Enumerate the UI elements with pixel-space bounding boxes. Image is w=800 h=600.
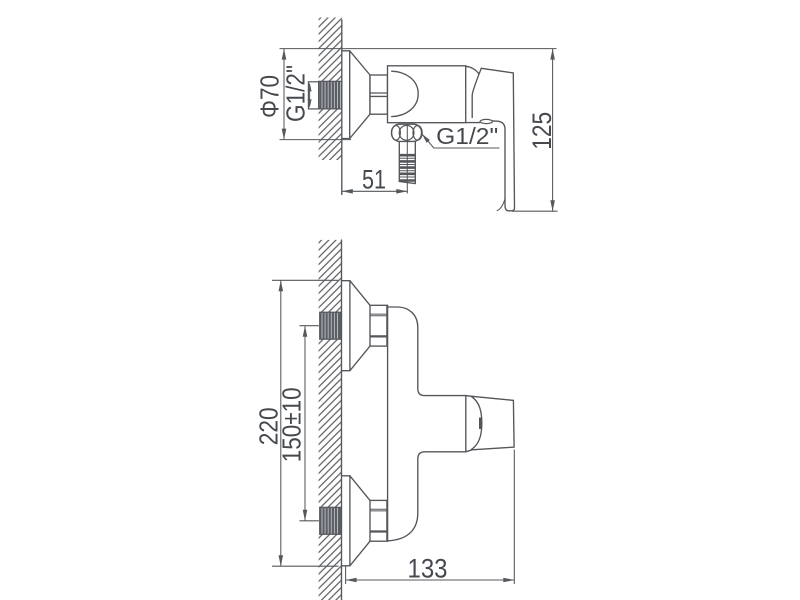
- svg-text:G1/2": G1/2": [436, 123, 498, 149]
- svg-text:51: 51: [362, 165, 386, 195]
- svg-text:133: 133: [408, 553, 448, 583]
- svg-text:Φ70: Φ70: [257, 75, 285, 118]
- svg-text:125: 125: [527, 112, 557, 150]
- svg-text:G1/2": G1/2": [283, 65, 311, 122]
- svg-text:150±10: 150±10: [278, 387, 306, 462]
